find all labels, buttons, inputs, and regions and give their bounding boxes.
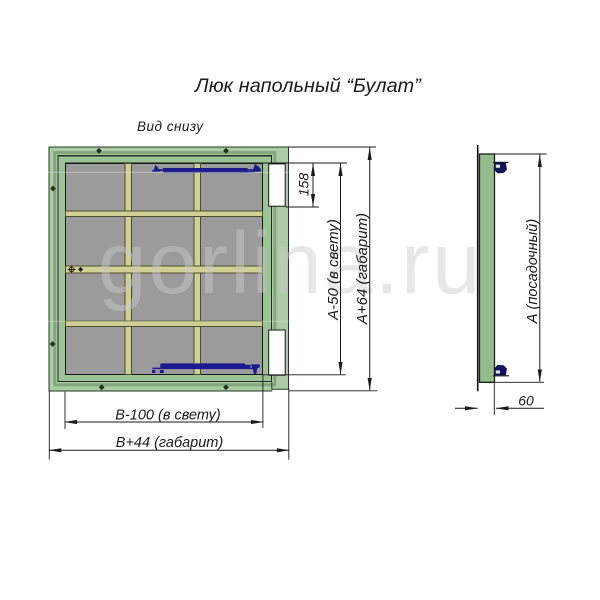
svg-text:gorlina.ru: gorlina.ru (98, 215, 483, 312)
svg-text:А-50 (в свету): А-50 (в свету) (325, 219, 342, 321)
svg-text:В+44 (габарит): В+44 (габарит) (116, 435, 223, 451)
svg-text:В-100 (в свету): В-100 (в свету) (115, 407, 220, 423)
svg-text:60: 60 (518, 393, 534, 409)
svg-text:Люк напольный “Булат”: Люк напольный “Булат” (193, 75, 422, 97)
svg-text:Вид снизу: Вид снизу (137, 119, 204, 134)
svg-text:А+64 (габарит): А+64 (габарит) (354, 213, 371, 325)
svg-text:А (посадочный): А (посадочный) (525, 219, 541, 324)
svg-text:158: 158 (296, 173, 312, 197)
